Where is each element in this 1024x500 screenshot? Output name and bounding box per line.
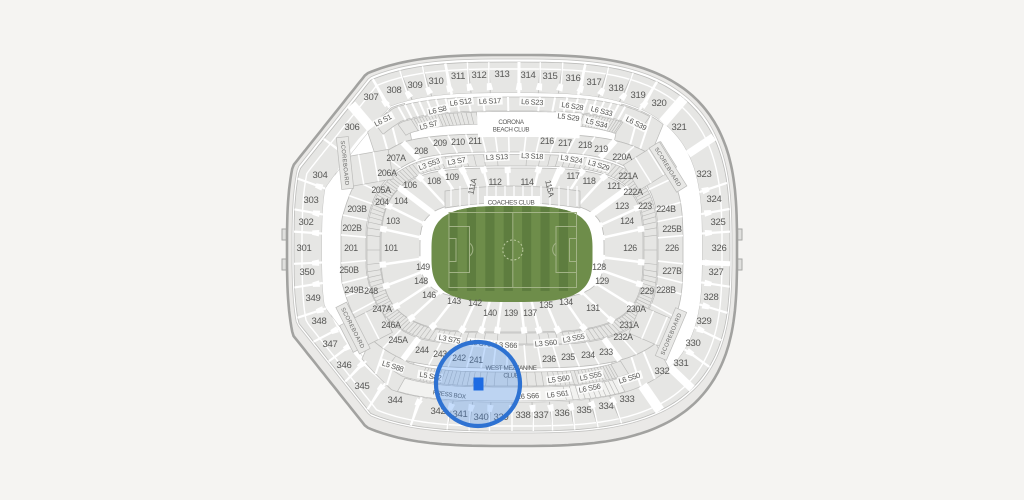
svg-text:121: 121 bbox=[607, 181, 621, 191]
svg-text:327: 327 bbox=[709, 267, 724, 278]
svg-text:126: 126 bbox=[623, 243, 637, 253]
svg-text:227B: 227B bbox=[662, 266, 682, 276]
svg-text:205A: 205A bbox=[371, 185, 391, 195]
svg-text:129: 129 bbox=[595, 276, 609, 286]
svg-text:338: 338 bbox=[516, 410, 531, 421]
svg-text:307: 307 bbox=[364, 92, 379, 103]
svg-text:235: 235 bbox=[561, 352, 575, 362]
svg-text:331: 331 bbox=[674, 358, 689, 369]
svg-text:234: 234 bbox=[581, 350, 595, 360]
svg-text:335: 335 bbox=[577, 405, 592, 416]
svg-text:109: 109 bbox=[445, 172, 459, 182]
svg-text:233: 233 bbox=[599, 347, 613, 357]
svg-text:317: 317 bbox=[587, 77, 602, 88]
svg-text:230A: 230A bbox=[626, 304, 646, 314]
svg-text:306: 306 bbox=[345, 122, 360, 133]
svg-text:140: 140 bbox=[483, 308, 497, 318]
svg-text:319: 319 bbox=[631, 90, 646, 101]
svg-text:332: 332 bbox=[655, 366, 670, 377]
svg-text:228B: 228B bbox=[656, 285, 676, 295]
svg-text:218: 218 bbox=[578, 140, 592, 150]
svg-text:320: 320 bbox=[652, 98, 667, 109]
svg-text:L3 S18: L3 S18 bbox=[521, 151, 544, 161]
svg-text:148: 148 bbox=[414, 276, 428, 286]
svg-text:334: 334 bbox=[599, 401, 614, 412]
svg-text:L3 S60: L3 S60 bbox=[534, 338, 557, 349]
svg-text:315: 315 bbox=[543, 71, 558, 82]
svg-text:142: 142 bbox=[468, 298, 482, 308]
svg-text:134: 134 bbox=[559, 297, 573, 307]
svg-text:207A: 207A bbox=[386, 153, 406, 163]
svg-text:206A: 206A bbox=[377, 168, 397, 178]
svg-text:143: 143 bbox=[447, 296, 461, 306]
svg-text:245A: 245A bbox=[388, 335, 408, 345]
svg-text:350: 350 bbox=[300, 267, 315, 278]
svg-text:222A: 222A bbox=[623, 187, 643, 197]
svg-text:108: 108 bbox=[427, 176, 441, 186]
svg-text:309: 309 bbox=[408, 80, 423, 91]
svg-text:236: 236 bbox=[542, 354, 556, 364]
svg-text:123: 123 bbox=[615, 201, 629, 211]
svg-text:COACHES CLUB: COACHES CLUB bbox=[488, 200, 535, 207]
svg-text:229: 229 bbox=[640, 286, 654, 296]
svg-text:114: 114 bbox=[520, 177, 534, 187]
svg-text:313: 313 bbox=[495, 69, 510, 80]
svg-text:336: 336 bbox=[555, 408, 570, 419]
svg-text:346: 346 bbox=[337, 360, 352, 371]
svg-text:323: 323 bbox=[697, 169, 712, 180]
svg-text:337: 337 bbox=[534, 410, 549, 421]
svg-text:217: 217 bbox=[558, 138, 572, 148]
svg-text:202B: 202B bbox=[342, 223, 362, 233]
svg-text:216: 216 bbox=[540, 136, 554, 146]
svg-text:149: 149 bbox=[416, 262, 430, 272]
svg-text:231A: 231A bbox=[619, 320, 639, 330]
svg-text:L6 S23: L6 S23 bbox=[521, 97, 544, 107]
svg-text:250B: 250B bbox=[339, 265, 359, 275]
svg-text:249B: 249B bbox=[344, 285, 364, 295]
svg-text:310: 310 bbox=[429, 76, 444, 87]
svg-text:124: 124 bbox=[620, 216, 634, 226]
svg-text:244: 244 bbox=[415, 345, 429, 355]
svg-text:247A: 247A bbox=[372, 304, 392, 314]
svg-text:330: 330 bbox=[686, 338, 701, 349]
svg-text:316: 316 bbox=[566, 73, 581, 84]
svg-text:324: 324 bbox=[707, 194, 722, 205]
svg-text:308: 308 bbox=[387, 85, 402, 96]
svg-text:L6 S17: L6 S17 bbox=[479, 96, 502, 106]
svg-text:BEACH CLUB: BEACH CLUB bbox=[493, 127, 530, 134]
svg-text:221A: 221A bbox=[618, 171, 638, 181]
svg-text:303: 303 bbox=[304, 195, 319, 206]
svg-text:104: 104 bbox=[394, 196, 408, 206]
svg-text:211: 211 bbox=[468, 136, 482, 146]
svg-text:326: 326 bbox=[712, 243, 727, 254]
svg-text:344: 344 bbox=[388, 395, 403, 406]
svg-text:328: 328 bbox=[704, 292, 719, 303]
svg-text:333: 333 bbox=[620, 394, 635, 405]
svg-text:137: 137 bbox=[523, 308, 537, 318]
svg-text:146: 146 bbox=[422, 290, 436, 300]
svg-text:349: 349 bbox=[306, 293, 321, 304]
svg-text:117: 117 bbox=[566, 171, 580, 181]
svg-text:345: 345 bbox=[355, 381, 370, 392]
svg-text:325: 325 bbox=[711, 217, 726, 228]
svg-text:106: 106 bbox=[403, 180, 417, 190]
svg-text:223: 223 bbox=[638, 201, 652, 211]
svg-text:204: 204 bbox=[375, 197, 389, 207]
svg-text:224B: 224B bbox=[656, 204, 676, 214]
svg-text:226: 226 bbox=[665, 243, 679, 253]
svg-text:131: 131 bbox=[586, 303, 600, 313]
svg-text:128: 128 bbox=[592, 262, 606, 272]
svg-text:CORONA: CORONA bbox=[498, 119, 525, 126]
svg-text:209: 209 bbox=[433, 138, 447, 148]
svg-text:203B: 203B bbox=[347, 204, 367, 214]
svg-text:314: 314 bbox=[521, 70, 536, 81]
svg-text:246A: 246A bbox=[381, 320, 401, 330]
svg-text:118: 118 bbox=[582, 176, 596, 186]
svg-text:135: 135 bbox=[539, 300, 553, 310]
svg-text:248: 248 bbox=[364, 286, 378, 296]
svg-text:220A: 220A bbox=[612, 152, 632, 162]
svg-text:347: 347 bbox=[323, 339, 338, 350]
svg-text:312: 312 bbox=[472, 70, 487, 81]
svg-text:302: 302 bbox=[299, 217, 314, 228]
svg-text:301: 301 bbox=[297, 243, 312, 254]
svg-text:329: 329 bbox=[697, 316, 712, 327]
svg-text:101: 101 bbox=[384, 243, 398, 253]
svg-text:225B: 225B bbox=[662, 224, 682, 234]
svg-text:139: 139 bbox=[504, 308, 518, 318]
svg-text:201: 201 bbox=[344, 243, 358, 253]
svg-text:304: 304 bbox=[313, 170, 328, 181]
svg-text:321: 321 bbox=[672, 122, 687, 133]
svg-text:112: 112 bbox=[488, 177, 502, 187]
svg-text:348: 348 bbox=[312, 316, 327, 327]
svg-text:232A: 232A bbox=[613, 332, 633, 342]
svg-text:318: 318 bbox=[609, 83, 624, 94]
svg-text:L3 S13: L3 S13 bbox=[486, 152, 509, 162]
svg-text:219: 219 bbox=[594, 144, 608, 154]
svg-text:208: 208 bbox=[414, 146, 428, 156]
svg-text:311: 311 bbox=[451, 71, 465, 82]
svg-text:103: 103 bbox=[386, 216, 400, 226]
svg-text:210: 210 bbox=[451, 137, 465, 147]
